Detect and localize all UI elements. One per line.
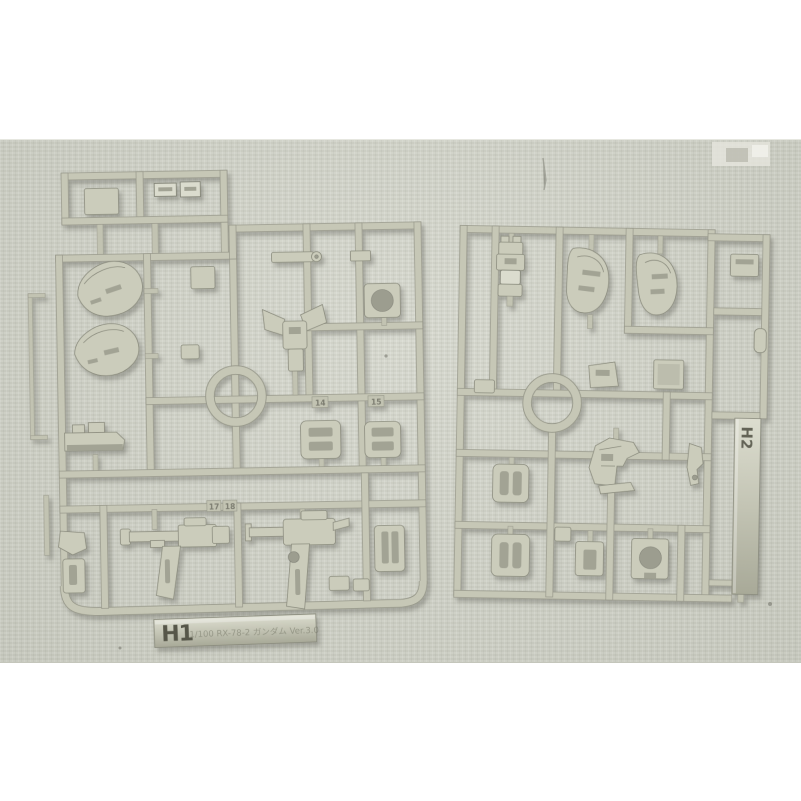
runner-bar [624,326,713,335]
ankle-armor-shell-part [70,253,149,325]
frame-window-part [300,420,341,459]
chrome-clip-parts [154,182,200,198]
runner-bar [454,225,467,595]
runner-bar [229,222,421,232]
slotted-block-part [374,525,405,572]
core-block-part [589,438,640,495]
part-gate-stem [588,531,593,543]
part-gate-stem [587,315,592,329]
small-plate-part [350,251,370,261]
part-gate-stem [144,288,158,293]
runner-bar [62,215,228,225]
slotted-pad-part [492,464,529,503]
round-socket-part [631,538,669,579]
runner-bar [709,580,735,586]
molded-number: 17 [209,502,220,511]
armor-plate-part [84,188,118,215]
part-gate-stem [145,353,158,358]
right-runner: H2 [454,225,770,602]
small-bracket-part [730,254,758,276]
molded-number-plate: 14 [312,396,328,407]
molded-number-plate: 17 [207,500,221,511]
runner-bar [454,590,732,602]
small-plate-part [329,576,349,590]
runner-bar [59,465,425,478]
runner-bar [234,503,243,607]
part-gate-stem [658,236,663,254]
runner-bar [220,170,228,222]
runner-bar [31,435,48,439]
runner-bar [136,172,144,224]
waist-cross-part [262,304,327,371]
left-runner: 14 15 17 18 [26,167,428,650]
runner-bar [624,228,633,333]
ring-socket-part [364,283,401,318]
part-gate-stem [152,509,157,529]
small-plate-part [555,527,571,541]
runner-bar [456,449,711,460]
frame-window-part [364,421,401,458]
runner-bar [28,294,35,440]
runner-bar [760,235,770,419]
molded-number: 15 [371,398,382,407]
small-plate-part [181,345,199,359]
runner-bar [143,254,154,476]
bench-part [588,362,618,389]
runner-bar [414,222,427,584]
ring-gate-part [522,373,582,433]
leg-frame-part [496,236,525,306]
runner-bar [708,234,770,242]
molded-number: 18 [225,502,236,511]
beam-rifle-half-part [245,510,351,610]
fabric-blemish-patch [712,142,770,166]
runner-bar [60,500,426,513]
runner-bar [677,525,685,601]
fabric-speck [768,602,772,606]
photo-page: 14 15 17 18 [0,0,801,801]
runner-bar [61,173,69,225]
runner-bar [221,222,229,254]
runner-photo-illustration: 14 15 17 18 [0,0,801,801]
small-plate-part [353,579,369,591]
square-plate-part [191,266,215,288]
lever-part [687,443,704,485]
molded-number-plate: 18 [223,500,237,511]
beam-rifle-half-part [120,517,230,600]
runner-bar [229,225,237,259]
socket-part [575,541,604,575]
runner-bar [61,170,227,180]
forearm-shell-part [635,252,678,316]
runner-bar [457,388,712,399]
runner-tag-h2-label: H2 [737,426,755,449]
fabric-thread [543,158,546,190]
small-bone-part [754,329,766,353]
slotted-pad-part [491,534,530,577]
molded-number-plate: 15 [368,395,384,406]
part-gate-stem [93,454,98,470]
fabric-speck [384,354,387,357]
block-part [653,360,684,390]
runner-bar [152,223,159,255]
mechanism-part [64,422,124,451]
runner-bar [100,505,109,608]
part-gate-stem [589,235,594,251]
forearm-shell-part [562,247,612,316]
runner-tag-h1: H1 1/100 RX-78-2 ガンダム Ver.3.0 [154,614,319,648]
runner-bar [28,293,45,297]
runner-bar [455,521,710,532]
runner-tag-h2: H2 [732,418,761,594]
part-gate-stem [613,428,618,440]
ankle-armor-shell-part [70,318,144,383]
runner-bar [662,392,670,460]
runner-bar [714,308,762,316]
runner-bar [44,495,50,555]
latch-part [271,252,321,263]
fabric-speck [119,647,122,650]
runner-bar [553,227,563,397]
runner-bar [97,224,104,256]
runner-bar [489,226,499,396]
molded-number: 14 [315,399,326,408]
small-plate-part [474,380,494,393]
